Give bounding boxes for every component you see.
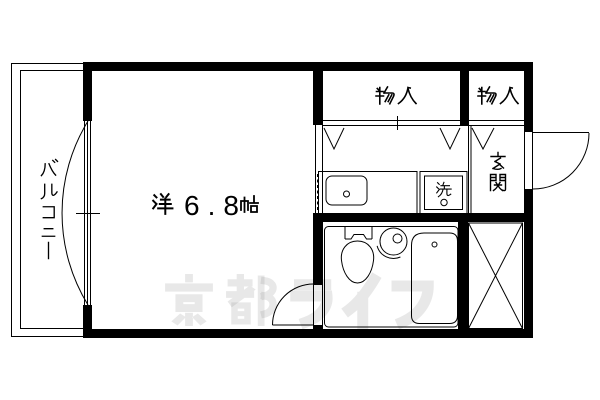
svg-text:6.8: 6.8 <box>184 190 247 221</box>
